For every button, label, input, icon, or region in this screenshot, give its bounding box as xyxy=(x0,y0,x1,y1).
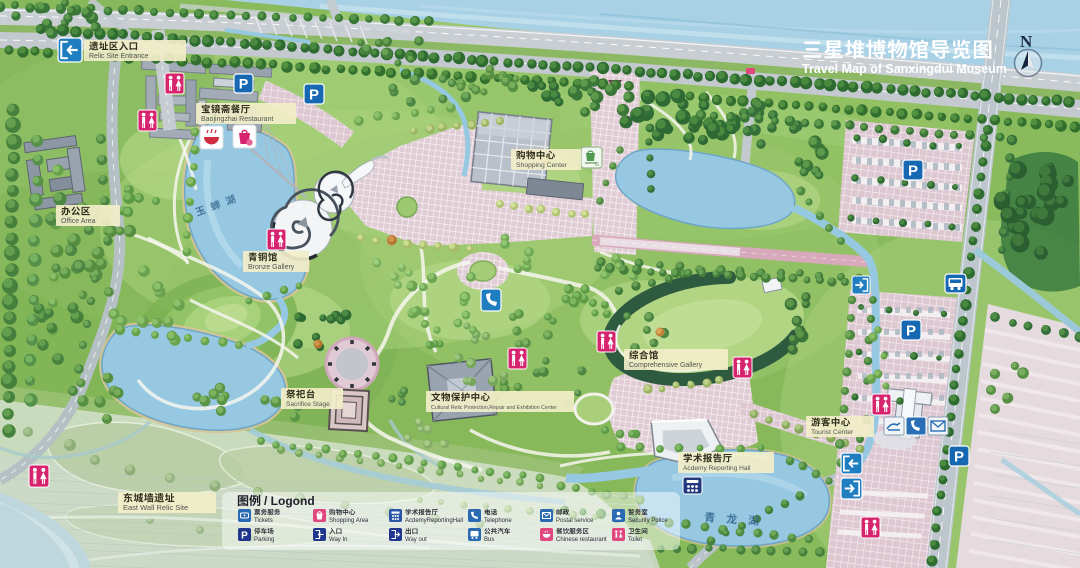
svg-text:N: N xyxy=(1020,32,1033,51)
svg-text:Toilet: Toilet xyxy=(628,537,642,543)
svg-text:P: P xyxy=(954,449,964,466)
svg-text:Tickets: Tickets xyxy=(254,518,273,524)
svg-text:P: P xyxy=(309,87,319,104)
svg-text:Chinese restaurant: Chinese restaurant xyxy=(556,537,607,543)
svg-text:/ Logond: / Logond xyxy=(264,494,315,508)
svg-text:G: G xyxy=(595,162,599,168)
svg-text:Bronze Gallery: Bronze Gallery xyxy=(248,264,295,271)
svg-text:Shopping Area: Shopping Area xyxy=(329,518,369,524)
svg-text:Relic Site Entrance: Relic Site Entrance xyxy=(89,53,149,60)
svg-text:Tourist Center: Tourist Center xyxy=(811,429,854,436)
svg-text:Security Police: Security Police xyxy=(628,518,668,524)
svg-text:AcdemyReportingHall: AcdemyReportingHall xyxy=(405,518,463,524)
svg-text:Shopping Center: Shopping Center xyxy=(516,162,568,169)
svg-text:Way out: Way out xyxy=(405,537,427,543)
svg-text:Travel Map of Sanxingdui Museu: Travel Map of Sanxingdui Museum xyxy=(802,62,1007,76)
svg-text:Office Area: Office Area xyxy=(61,218,96,225)
svg-text:Baojingzhai Restaurant: Baojingzhai Restaurant xyxy=(201,116,273,123)
svg-text:P: P xyxy=(908,163,918,180)
svg-text:Cultural Relic Protection,Repa: Cultural Relic Protection,Repair and Exh… xyxy=(431,405,557,411)
svg-text:P: P xyxy=(239,77,249,93)
svg-text:P: P xyxy=(241,531,248,542)
svg-text:Parking: Parking xyxy=(254,537,274,543)
svg-text:Acdemy Reporting Hall: Acdemy Reporting Hall xyxy=(683,465,751,472)
svg-text:P: P xyxy=(906,323,916,340)
svg-text:Way In: Way In xyxy=(329,537,347,543)
svg-text:East Wall Relic Site: East Wall Relic Site xyxy=(123,503,188,512)
svg-text:Postal service: Postal service xyxy=(556,518,594,524)
svg-text:Sacrifice Stage: Sacrifice Stage xyxy=(286,401,330,408)
svg-text:Telephone: Telephone xyxy=(484,518,512,524)
svg-text:Comprehensive Gallery: Comprehensive Gallery xyxy=(629,362,703,369)
svg-text:Bus: Bus xyxy=(484,537,494,543)
